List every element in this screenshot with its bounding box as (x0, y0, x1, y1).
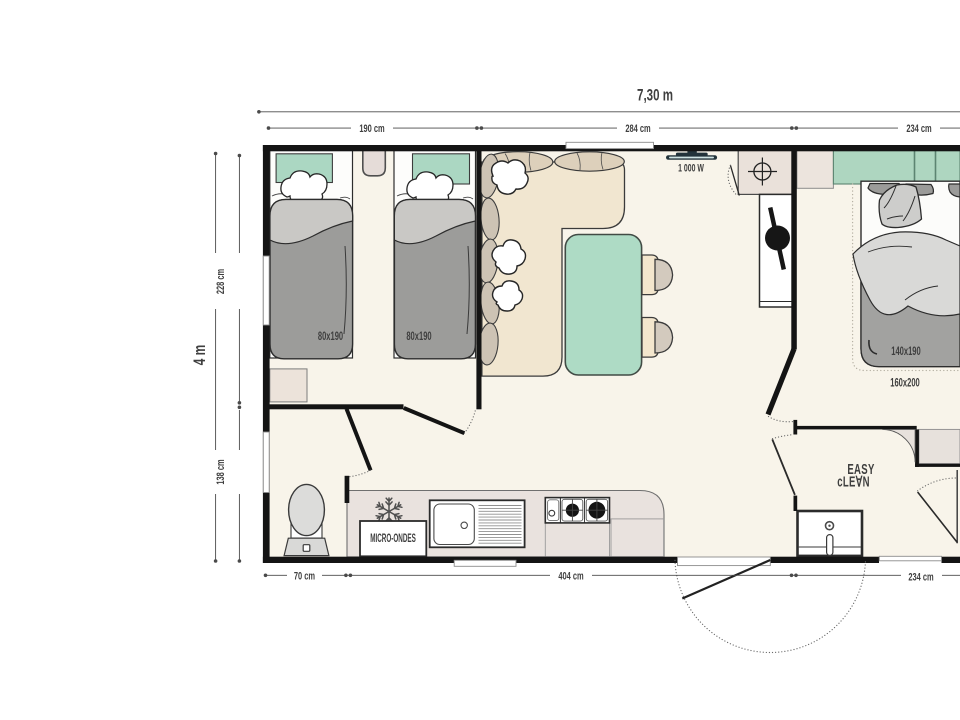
svg-text:284 cm: 284 cm (625, 121, 650, 134)
svg-text:234 cm: 234 cm (906, 121, 931, 134)
svg-text:80x190: 80x190 (318, 331, 344, 344)
svg-text:404 cm: 404 cm (558, 569, 583, 582)
svg-text:80x190: 80x190 (406, 331, 432, 344)
svg-text:MICRO-ONDES: MICRO-ONDES (370, 532, 416, 544)
svg-text:190 cm: 190 cm (359, 121, 384, 134)
svg-text:234 cm: 234 cm (908, 570, 933, 583)
svg-text:140x190: 140x190 (891, 346, 921, 359)
svg-text:4 m: 4 m (191, 345, 210, 365)
svg-text:160x200: 160x200 (890, 377, 920, 390)
svg-text:cLE∀N: cLE∀N (837, 474, 870, 491)
svg-text:138 cm: 138 cm (213, 459, 226, 484)
svg-text:70 cm: 70 cm (294, 569, 315, 582)
svg-text:7,30 m: 7,30 m (637, 87, 673, 106)
svg-text:228 cm: 228 cm (213, 269, 226, 294)
svg-text:1 000 W: 1 000 W (678, 162, 704, 174)
